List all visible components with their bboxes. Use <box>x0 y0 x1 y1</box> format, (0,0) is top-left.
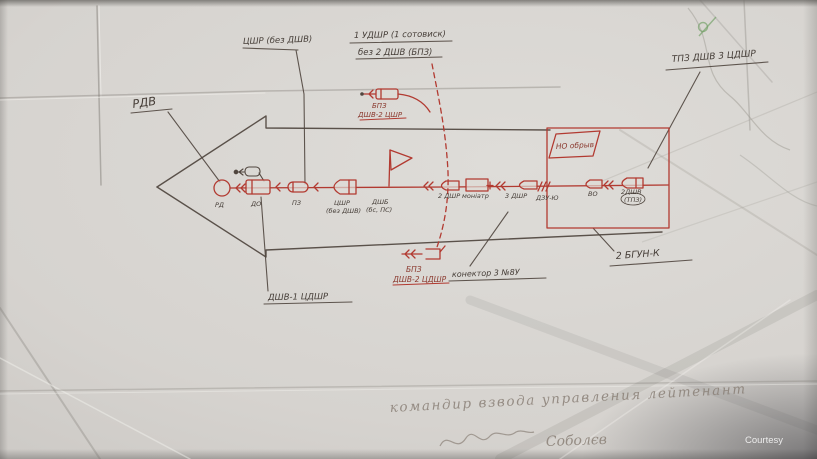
demolition-chain-diagram: ЦШР (без ДШВ) 1 УДШР (1 сотовиск) без 2 … <box>0 0 817 459</box>
photo-of-paper-diagram: ЦШР (без ДШВ) 1 УДШР (1 сотовиск) без 2 … <box>0 0 817 459</box>
callout-dshv1: ДШВ-1 ЦДШР <box>267 292 329 303</box>
chain-label-vo: ВО <box>588 190 598 198</box>
chain-label-dzu: ДЗУ-Ю <box>535 194 559 202</box>
chain-label-3dshr: 3 ДШР <box>505 192 527 200</box>
map-ghost-lines <box>600 8 817 242</box>
signature-line2: Соболєв <box>546 432 608 450</box>
callout-no-obryv: НО обрыв <box>556 140 595 151</box>
callout-tsshr: ЦШР (без ДШВ) <box>243 35 313 47</box>
map-green-symbol <box>699 17 717 36</box>
chain-label-pz: ПЗ <box>292 199 301 207</box>
callout-udshr-bottom: без 2 ДШВ (БПЗ) <box>358 48 432 58</box>
signature-block: командир взвода управления лейтенант Соб… <box>389 381 747 450</box>
courtesy-watermark: Courtesy <box>745 435 783 446</box>
callout-bpz-top-1: БПЗ <box>372 102 387 110</box>
chain-label-tsshr: ЦШР <box>334 199 350 207</box>
callout-connector: конектор 3 №8У <box>452 268 521 279</box>
callout-bpz-bottom-1: БПЗ <box>406 265 422 274</box>
callout-tpz: ТПЗ ДШВ 3 ЦДШР <box>672 49 757 65</box>
callout-bgun: 2 БГУН-К <box>615 248 661 262</box>
chain-label-rd: РД <box>215 201 224 209</box>
igniter-branch <box>234 167 264 181</box>
chain-label-dshb: ДШБ <box>371 198 389 206</box>
red-chain-drawing <box>214 64 669 285</box>
callout-bpz-bottom-2: ДШВ-2 ЦДШР <box>392 275 447 284</box>
callout-udshr-top: 1 УДШР (1 сотовиск) <box>354 29 446 41</box>
chain-label-moniatr: моніатр <box>462 192 489 200</box>
callout-bpz-top-2: ДШВ-2 ЦШР <box>357 111 403 119</box>
chain-component-labels: РД ДО ПЗ ЦШР (без ДШВ) ДШБ (бс, ПС) 2 ДШ… <box>215 188 642 215</box>
callout-pointer-lines <box>131 41 768 304</box>
signature-line1: командир взвода управления лейтенант <box>389 381 747 416</box>
chain-label-dshb-2: (бс, ПС) <box>366 206 392 214</box>
chain-label-do: ДО <box>250 200 261 208</box>
chain-label-2dshr: 2 ДШР <box>438 192 460 200</box>
arrow-outline <box>157 116 662 257</box>
chain-label-2dshv: 2ДШВ <box>621 188 642 196</box>
callout-rdv: РДВ <box>131 94 157 111</box>
chain-label-2dshv-2: (ТПЗ) <box>624 196 642 204</box>
chain-label-tsshr-2: (без ДШВ) <box>326 207 361 215</box>
